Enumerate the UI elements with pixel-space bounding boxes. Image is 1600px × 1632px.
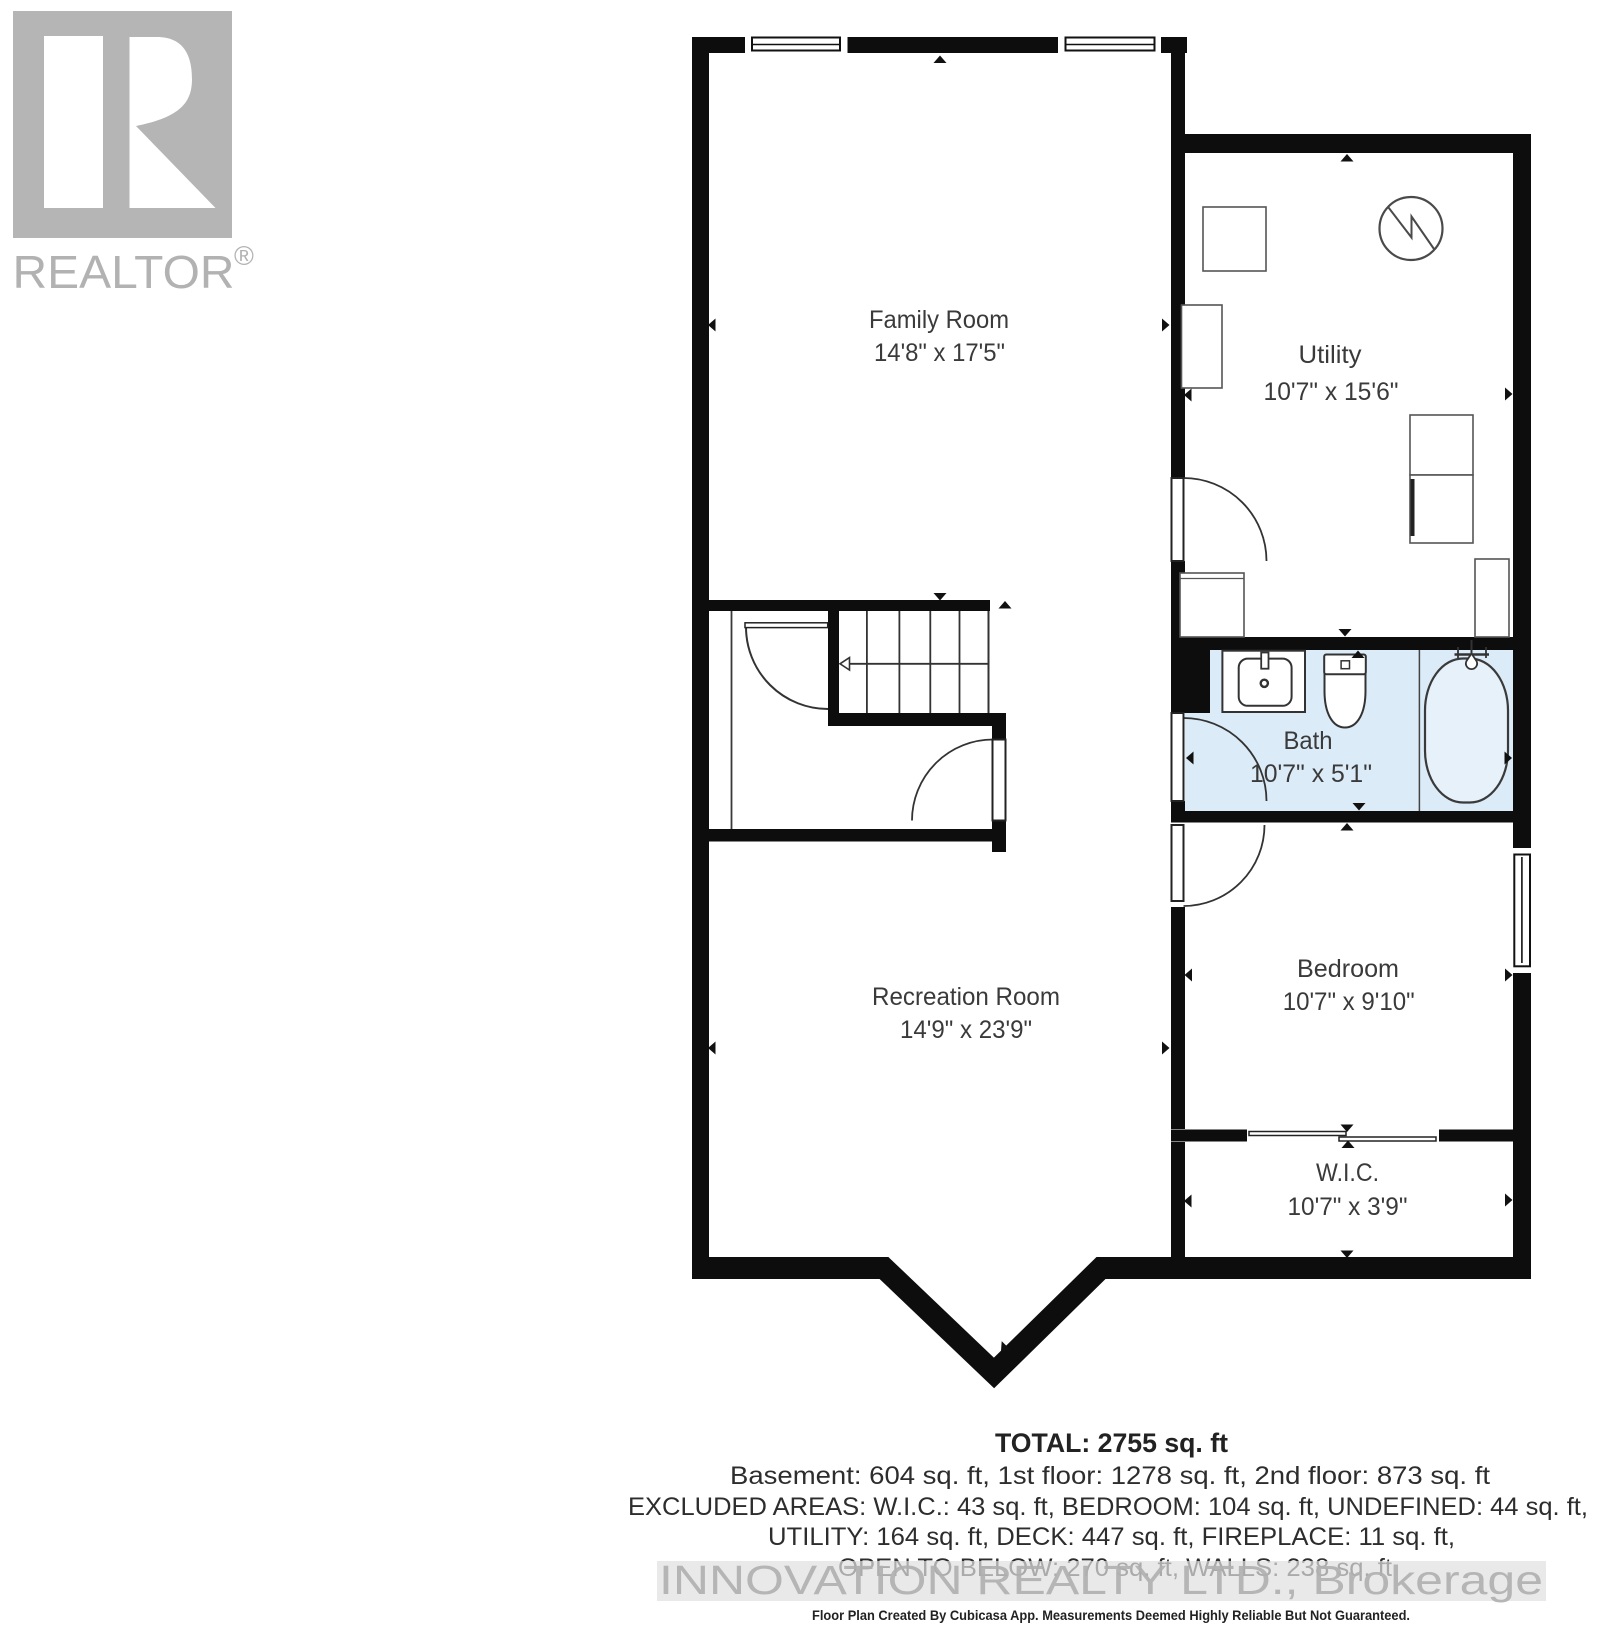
svg-text:Floor Plan Created By Cubicasa: Floor Plan Created By Cubicasa App. Meas… <box>812 1607 1410 1623</box>
svg-text:REALTOR: REALTOR <box>13 246 235 298</box>
svg-text:10'7" x 3'9": 10'7" x 3'9" <box>1288 1193 1408 1221</box>
svg-text:Recreation Room: Recreation Room <box>872 983 1060 1011</box>
svg-text:TOTAL: 2755 sq. ft: TOTAL: 2755 sq. ft <box>995 1428 1228 1458</box>
svg-text:10'7" x 15'6": 10'7" x 15'6" <box>1264 378 1399 406</box>
svg-text:14'9" x 23'9": 14'9" x 23'9" <box>900 1016 1032 1044</box>
svg-text:UTILITY: 164 sq. ft, DECK: 447: UTILITY: 164 sq. ft, DECK: 447 sq. ft, F… <box>768 1523 1455 1551</box>
svg-text:Basement: 604 sq. ft, 1st floo: Basement: 604 sq. ft, 1st floor: 1278 sq… <box>730 1462 1490 1490</box>
svg-text:Bedroom: Bedroom <box>1297 955 1399 983</box>
svg-text:10'7" x 5'1": 10'7" x 5'1" <box>1250 760 1372 788</box>
svg-text:EXCLUDED AREAS: W.I.C.: 43 sq.: EXCLUDED AREAS: W.I.C.: 43 sq. ft, BEDRO… <box>628 1493 1588 1521</box>
svg-text:W.I.C.: W.I.C. <box>1316 1159 1379 1187</box>
svg-text:Bath: Bath <box>1284 727 1333 755</box>
svg-text:INNOVATION REALTY LTD., Broker: INNOVATION REALTY LTD., Brokerage <box>659 1557 1543 1603</box>
svg-text:10'7" x 9'10": 10'7" x 9'10" <box>1283 988 1415 1016</box>
svg-text:14'8" x 17'5": 14'8" x 17'5" <box>874 339 1005 367</box>
svg-text:Family Room: Family Room <box>869 306 1009 334</box>
svg-text:®: ® <box>234 241 254 271</box>
svg-text:Utility: Utility <box>1299 341 1363 369</box>
